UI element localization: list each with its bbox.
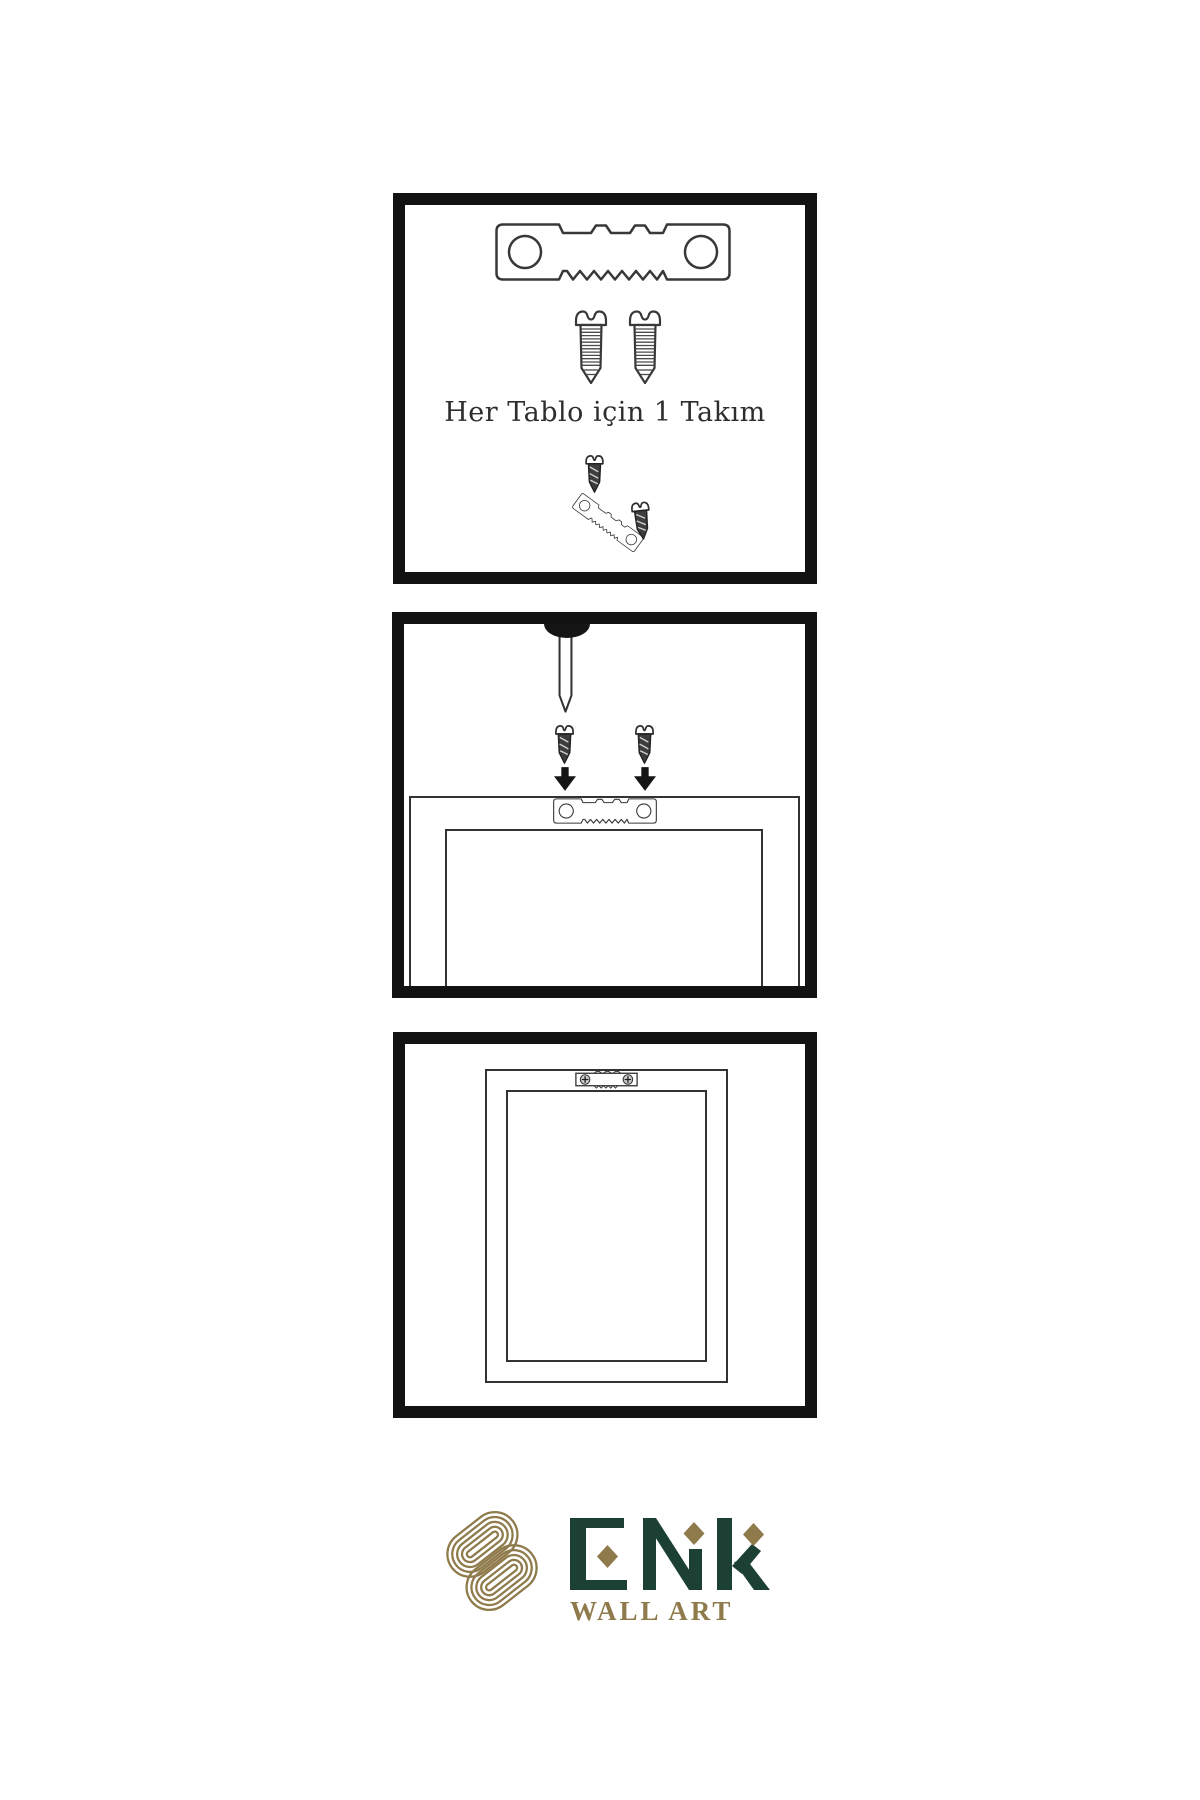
screw-dark-icon bbox=[634, 724, 655, 766]
screw-dark-icon bbox=[554, 724, 575, 766]
brand-wordmark-enk bbox=[570, 1518, 770, 1592]
step-1-panel: Her Tablo için 1 Takım bbox=[393, 193, 817, 584]
instruction-sheet: Her Tablo için 1 Takım bbox=[0, 0, 1200, 1800]
screw-icon bbox=[573, 308, 609, 386]
nail-hole-icon bbox=[544, 624, 590, 638]
hanging-frame-inner-outline bbox=[506, 1090, 707, 1362]
brand-subtitle: WALL ART bbox=[570, 1596, 770, 1627]
frame-back-inner-outline bbox=[445, 829, 763, 986]
step-3-panel bbox=[393, 1032, 817, 1418]
sawtooth-hanger-icon bbox=[553, 798, 657, 824]
down-arrow-icon bbox=[634, 767, 656, 791]
wall-nail-icon bbox=[557, 625, 574, 720]
mounted-sawtooth-hanger-icon bbox=[575, 1070, 638, 1089]
screw-icon bbox=[627, 308, 663, 386]
sawtooth-hanger-icon bbox=[495, 223, 731, 281]
brand-name-text: ENK bbox=[0, 0, 1, 1]
screw-dark-icon bbox=[584, 454, 605, 495]
screw-dark-icon bbox=[629, 500, 654, 543]
down-arrow-icon bbox=[554, 767, 576, 791]
step-1-caption: Her Tablo için 1 Takım bbox=[405, 397, 805, 428]
interlocked-knot-emblem-icon bbox=[436, 1500, 548, 1622]
step-2-panel bbox=[392, 612, 817, 998]
